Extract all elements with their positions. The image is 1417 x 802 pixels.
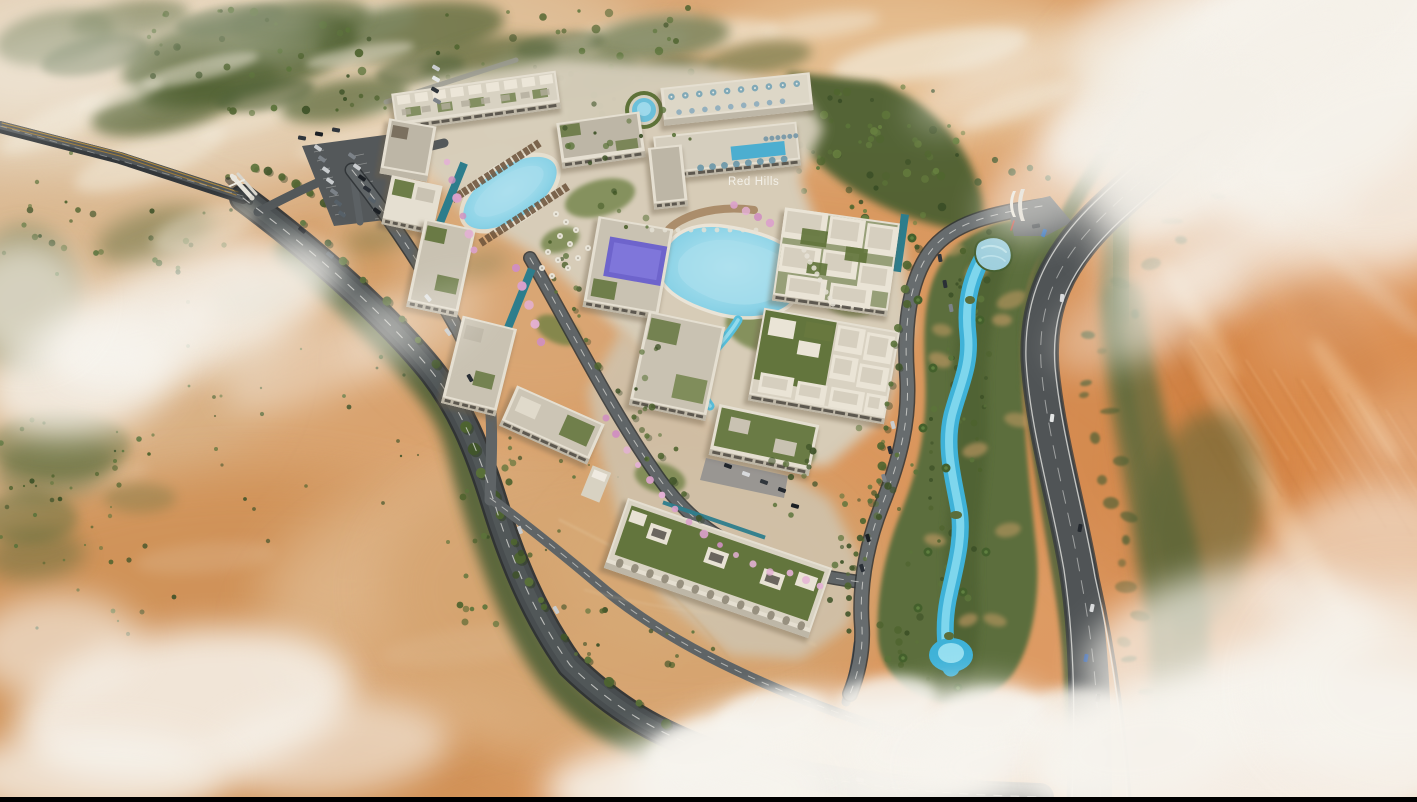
svg-text:Red Hills: Red Hills — [728, 176, 779, 188]
